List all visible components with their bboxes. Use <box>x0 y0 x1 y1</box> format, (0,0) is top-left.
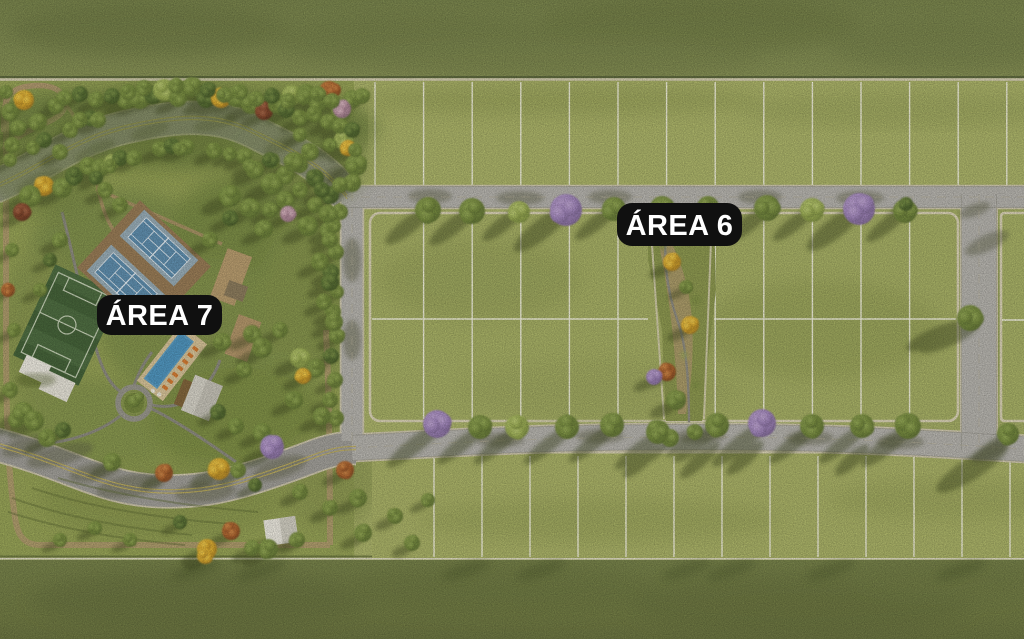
svg-text:ÁREA 7: ÁREA 7 <box>106 298 214 332</box>
svg-text:ÁREA 6: ÁREA 6 <box>626 208 734 242</box>
